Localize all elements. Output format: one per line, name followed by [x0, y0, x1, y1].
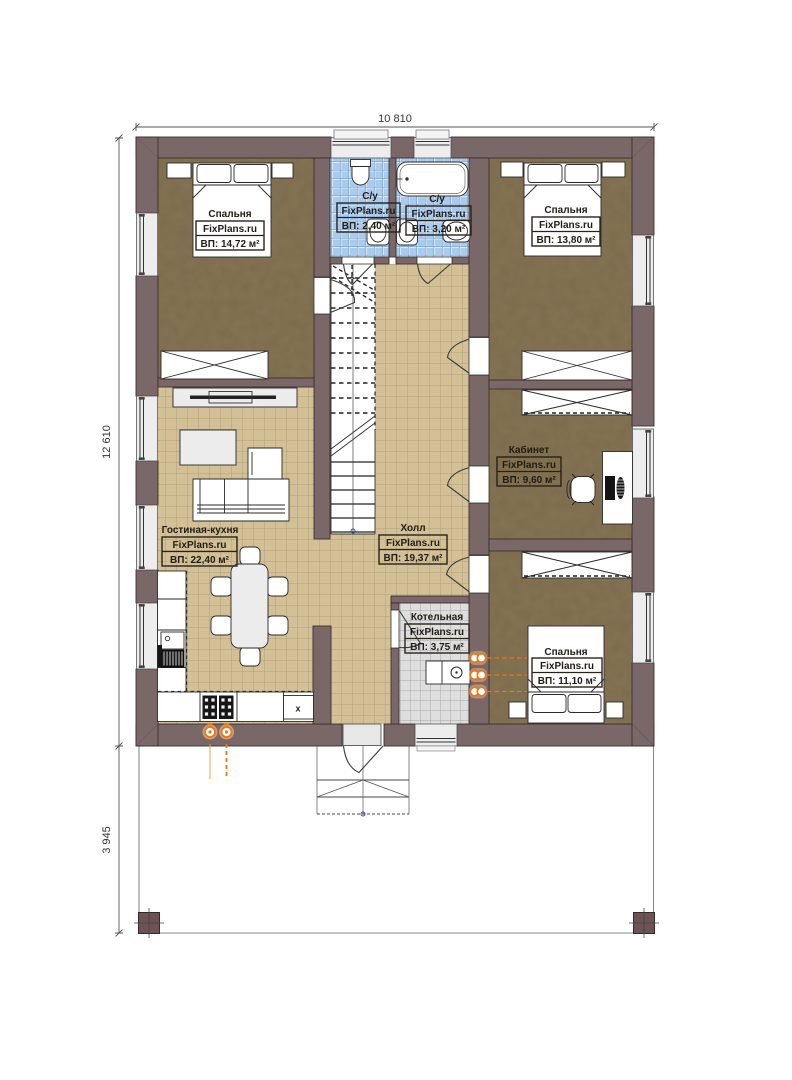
- svg-text:3 945: 3 945: [101, 826, 113, 854]
- svg-text:ВП: 19,37 м²: ВП: 19,37 м²: [383, 553, 443, 564]
- svg-text:FixPlans.ru: FixPlans.ru: [502, 460, 556, 471]
- svg-text:FixPlans.ru: FixPlans.ru: [540, 661, 594, 672]
- svg-text:ВП: 3,75 м²: ВП: 3,75 м²: [410, 642, 464, 653]
- svg-text:FixPlans.ru: FixPlans.ru: [173, 540, 227, 551]
- svg-text:Спальня: Спальня: [544, 205, 587, 216]
- svg-text:Холл: Холл: [400, 523, 425, 534]
- svg-text:Гостиная-кухня: Гостиная-кухня: [162, 525, 239, 536]
- svg-text:ВП: 11,10 м²: ВП: 11,10 м²: [538, 676, 597, 687]
- svg-text:ВП: 13,80 м²: ВП: 13,80 м²: [536, 235, 596, 246]
- svg-text:ВП: 22,40 м²: ВП: 22,40 м²: [170, 555, 230, 566]
- svg-text:Кабинет: Кабинет: [509, 444, 550, 456]
- svg-text:ВП: 3,20 м²: ВП: 3,20 м²: [412, 224, 466, 235]
- svg-text:ВП: 2,40 м²: ВП: 2,40 м²: [342, 221, 396, 232]
- svg-text:FixPlans.ru: FixPlans.ru: [342, 206, 396, 217]
- svg-text:FixPlans.ru: FixPlans.ru: [412, 209, 466, 220]
- svg-text:ВП: 14,72 м²: ВП: 14,72 м²: [200, 239, 260, 250]
- svg-text:10 810: 10 810: [378, 113, 412, 125]
- svg-text:С/у: С/у: [362, 191, 378, 202]
- svg-text:x: x: [295, 704, 300, 714]
- svg-text:ВП: 9,60 м²: ВП: 9,60 м²: [502, 475, 556, 486]
- svg-text:12 610: 12 610: [101, 425, 113, 459]
- svg-text:FixPlans.ru: FixPlans.ru: [410, 627, 464, 638]
- svg-text:Спальня: Спальня: [544, 647, 587, 658]
- svg-text:FixPlans.ru: FixPlans.ru: [386, 538, 440, 549]
- svg-text:FixPlans.ru: FixPlans.ru: [539, 220, 593, 231]
- svg-text:Котельная: Котельная: [411, 612, 464, 623]
- svg-text:FixPlans.ru: FixPlans.ru: [203, 224, 257, 235]
- svg-text:С/у: С/у: [429, 194, 445, 205]
- svg-text:Спальня: Спальня: [208, 209, 251, 220]
